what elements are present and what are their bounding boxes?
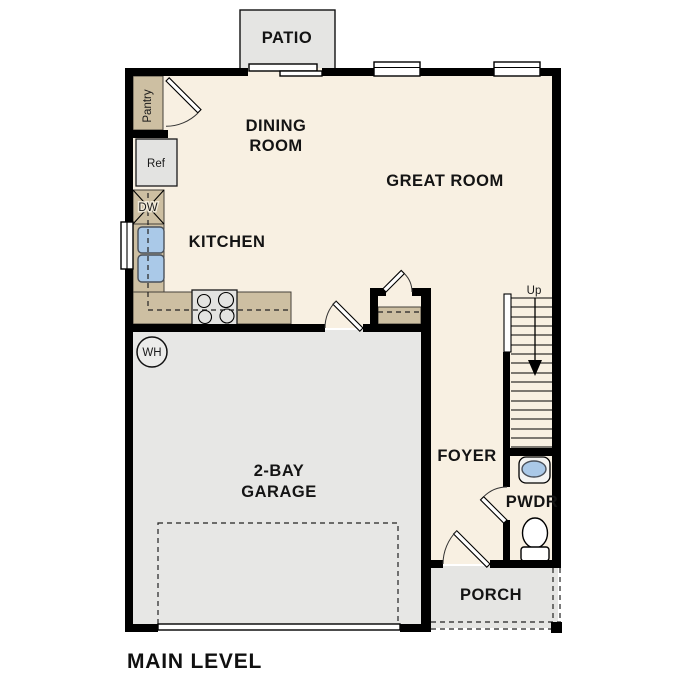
refrigerator-label: Ref xyxy=(147,158,166,170)
powder-sink-bowl xyxy=(522,461,546,477)
garage-door xyxy=(158,624,400,630)
window-top-2 xyxy=(494,62,540,76)
stairs-up-label: Up xyxy=(527,285,542,297)
wall-garage-east xyxy=(421,288,431,632)
page-title: MAIN LEVEL xyxy=(127,650,262,673)
dishwasher-label: DW xyxy=(138,202,157,214)
water-heater-label: WH xyxy=(142,347,161,359)
wall-powder-north xyxy=(503,448,561,456)
closet-shelf xyxy=(378,307,421,324)
dining-room-label-line2: ROOM xyxy=(249,137,302,155)
wall-stairs-west xyxy=(503,352,510,448)
kitchen-sink-basin-1 xyxy=(138,227,164,253)
foyer-label: FOYER xyxy=(437,447,496,465)
wall-powder-west-lower xyxy=(503,520,510,562)
toilet-bowl xyxy=(523,518,548,548)
toilet-tank xyxy=(521,547,549,561)
porch-post xyxy=(551,622,562,633)
wall-kitchen-garage-left xyxy=(125,324,325,332)
window-left xyxy=(121,222,133,269)
pwdr-label: PWDR xyxy=(506,493,558,511)
pantry-label: Pantry xyxy=(142,89,154,122)
floor-plan-svg: PATIO DINING ROOM GREAT ROOM KITCHEN 2-B… xyxy=(0,0,687,687)
wall-foyer-bottom-right xyxy=(490,560,561,568)
wall-closet-stub-right xyxy=(412,288,431,296)
dining-room-label-line1: DINING xyxy=(246,117,307,135)
garage-label-line2: GARAGE xyxy=(241,483,316,501)
garage-label-line1: 2-BAY xyxy=(254,462,305,480)
wall-left xyxy=(125,68,133,632)
stove xyxy=(192,290,237,327)
stairs-railing xyxy=(504,294,511,352)
floor-plan-page: PATIO DINING ROOM GREAT ROOM KITCHEN 2-B… xyxy=(0,0,687,687)
patio-label: PATIO xyxy=(262,29,312,47)
wall-garage-bottom-left xyxy=(125,624,158,632)
great-room-label: GREAT ROOM xyxy=(386,172,503,190)
sliding-door-panel-1 xyxy=(249,64,317,71)
wall-powder-west-upper xyxy=(503,456,510,487)
kitchen-label: KITCHEN xyxy=(189,233,266,251)
coat-closet xyxy=(378,307,421,324)
sliding-door-panel-2 xyxy=(280,71,322,76)
window-top-1 xyxy=(374,62,420,76)
porch-label: PORCH xyxy=(460,586,522,604)
kitchen-sink-basin-2 xyxy=(138,255,164,282)
wall-pantry-stub xyxy=(125,130,168,138)
